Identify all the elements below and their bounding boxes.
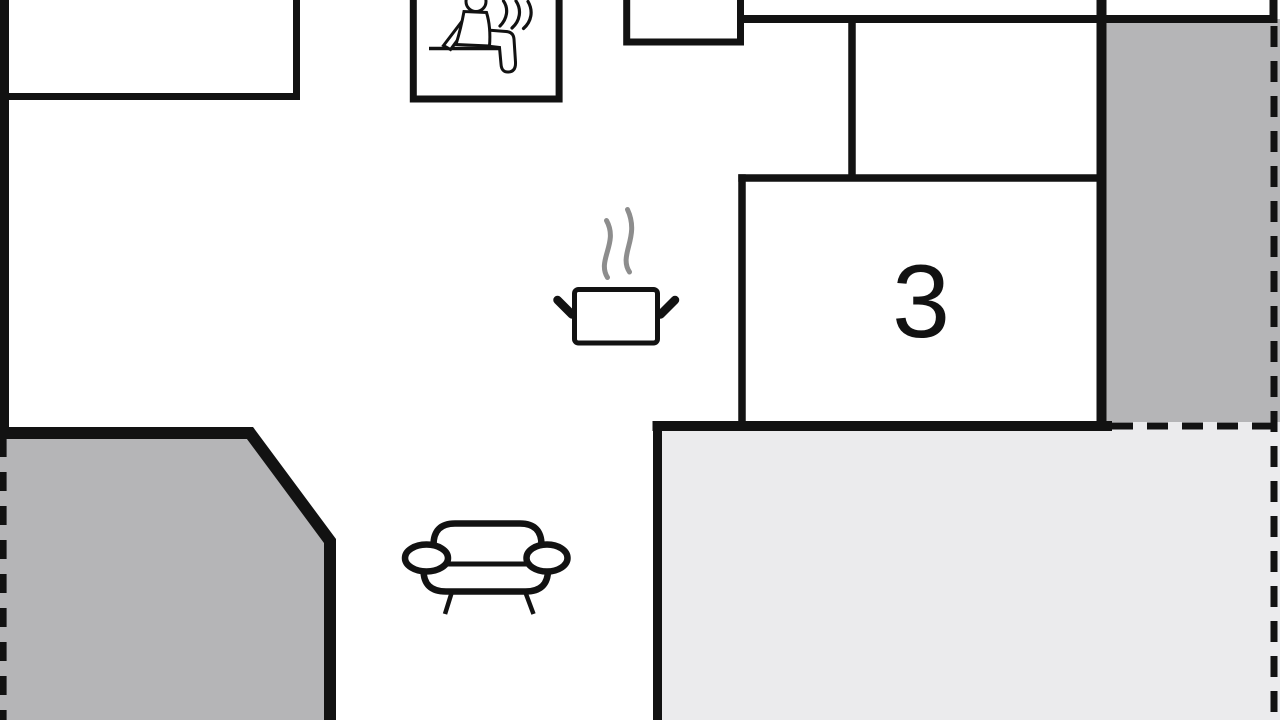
sofa-armrest-left — [405, 545, 448, 572]
veranda-bottom-fill — [653, 422, 1280, 720]
balcony-right-fill — [1107, 19, 1280, 422]
sauna-person-head — [466, 0, 486, 12]
room-number-label: 3 — [892, 244, 950, 360]
pot-body — [575, 290, 658, 344]
sofa-armrest-right — [527, 545, 568, 572]
floor-plan-canvas: 3 — [0, 0, 1280, 720]
closet-box — [627, 0, 741, 42]
floor-plan: 3 — [0, 0, 1280, 720]
